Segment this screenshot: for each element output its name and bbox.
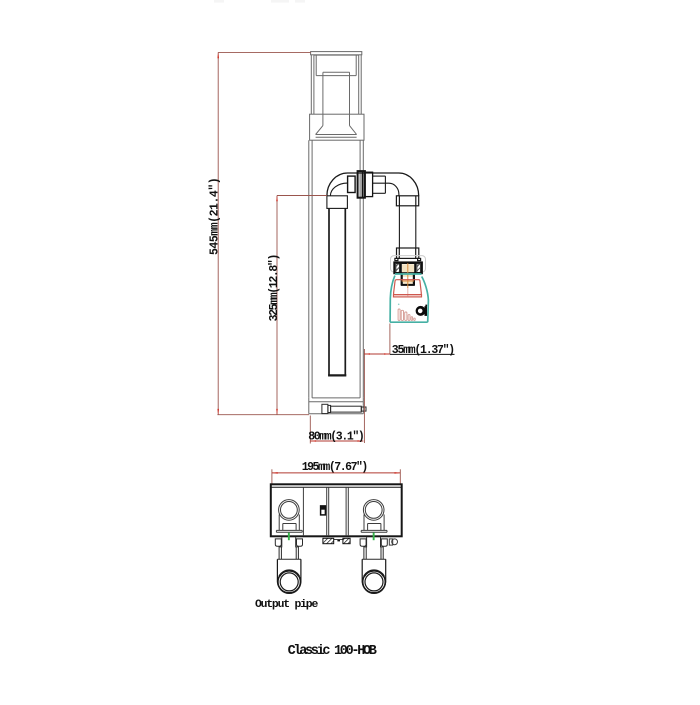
svg-text:35mm(1.37″): 35mm(1.37″): [392, 344, 454, 357]
svg-text:Classic 100-HOB: Classic 100-HOB: [288, 644, 377, 659]
svg-text:195mm(7.67″): 195mm(7.67″): [302, 461, 367, 474]
svg-text:545mm(21.4″): 545mm(21.4″): [208, 178, 221, 255]
svg-text:325mm(12.8″): 325mm(12.8″): [268, 255, 281, 321]
svg-text:Output pipe: Output pipe: [255, 599, 318, 611]
svg-text:80mm(3.1″): 80mm(3.1″): [308, 430, 363, 443]
